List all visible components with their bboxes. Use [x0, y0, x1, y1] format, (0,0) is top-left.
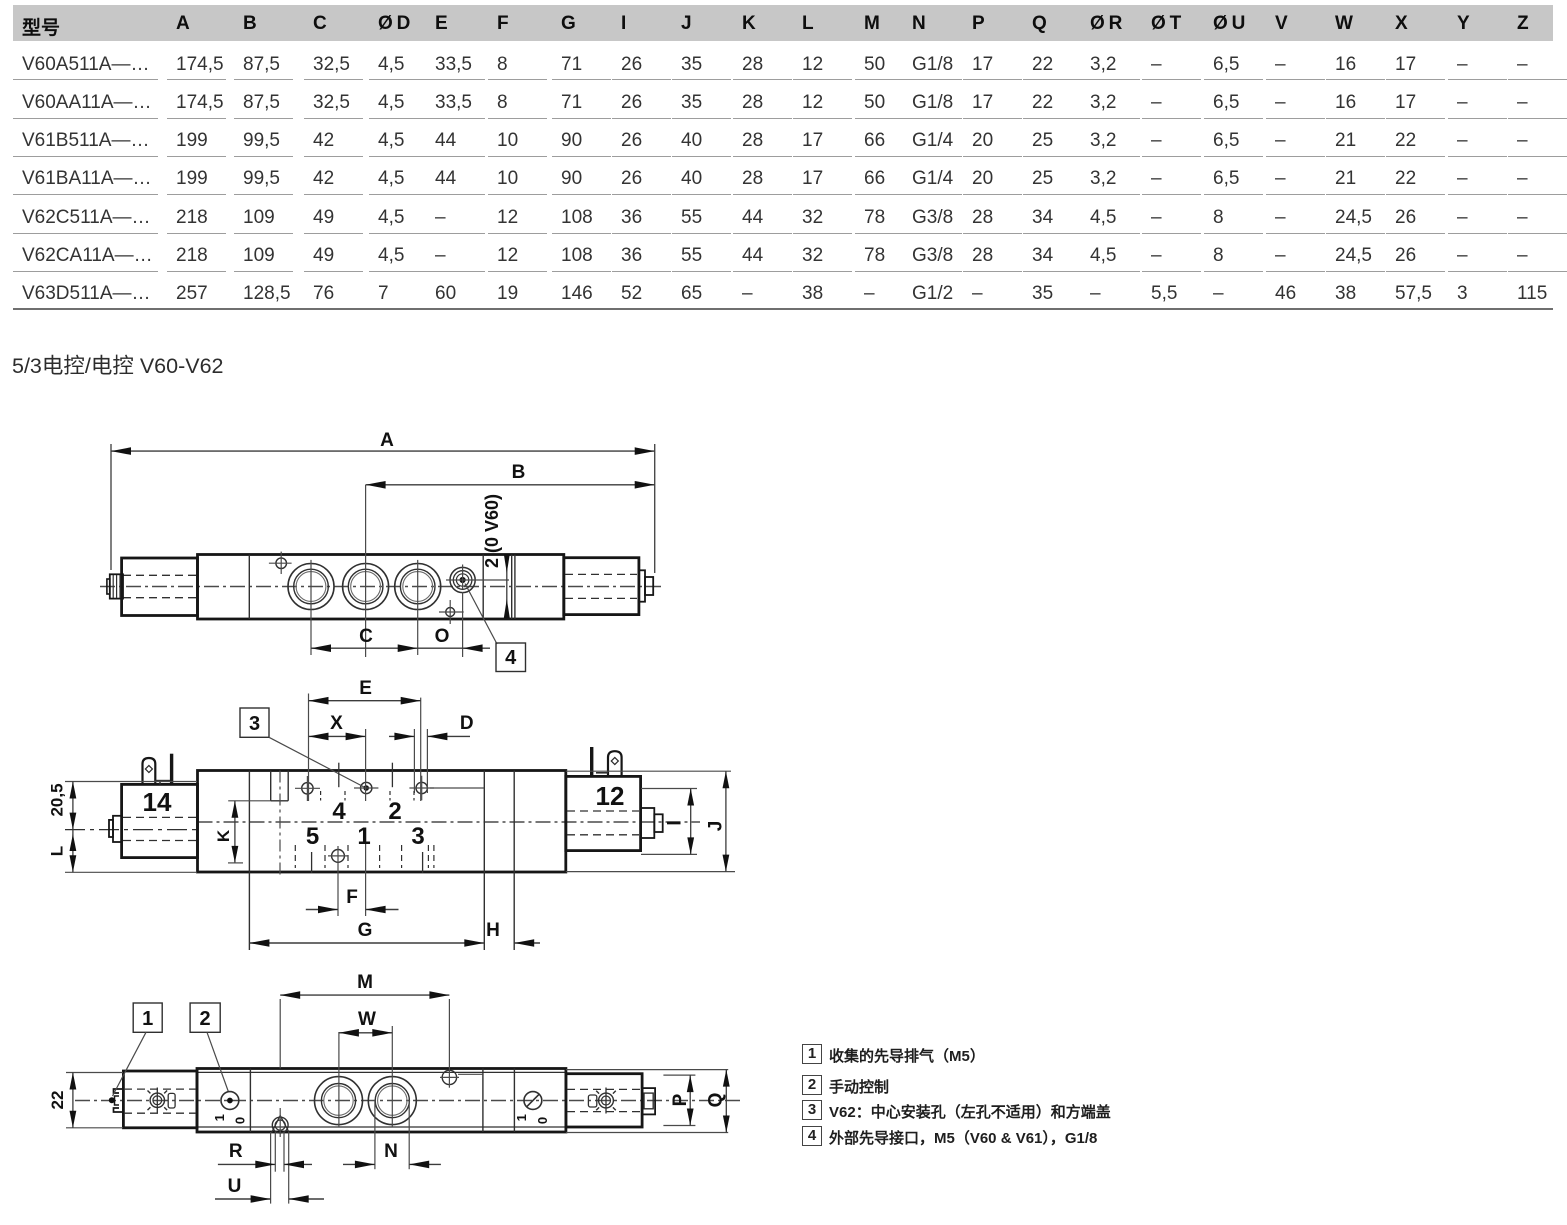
svg-text:1: 1	[514, 1114, 529, 1121]
svg-text:U: U	[228, 1176, 242, 1197]
svg-text:3: 3	[411, 823, 424, 850]
svg-text:12: 12	[596, 781, 625, 811]
svg-text:C: C	[359, 626, 373, 647]
svg-text:B: B	[512, 462, 526, 483]
svg-text:F: F	[346, 887, 358, 908]
svg-text:H: H	[486, 920, 500, 941]
svg-text:G: G	[358, 920, 373, 941]
svg-text:22: 22	[48, 1091, 67, 1110]
svg-text:0: 0	[233, 1117, 248, 1124]
svg-text:Q: Q	[706, 1093, 727, 1108]
svg-text:O: O	[435, 626, 450, 647]
svg-text:M: M	[357, 972, 373, 993]
svg-text:2 (0 V60): 2 (0 V60)	[482, 494, 502, 568]
svg-text:X: X	[330, 713, 343, 734]
svg-text:R: R	[229, 1141, 243, 1162]
svg-text:5: 5	[306, 823, 319, 850]
svg-text:D: D	[460, 713, 474, 734]
svg-text:14: 14	[143, 787, 172, 817]
svg-text:2: 2	[388, 798, 401, 825]
svg-text:W: W	[358, 1009, 376, 1030]
svg-text:L: L	[48, 846, 67, 856]
svg-text:0: 0	[535, 1117, 550, 1124]
svg-text:P: P	[670, 1093, 691, 1106]
svg-text:I: I	[665, 820, 686, 825]
svg-text:3: 3	[249, 713, 260, 735]
svg-text:1: 1	[142, 1008, 153, 1030]
svg-text:K: K	[214, 829, 233, 842]
svg-text:4: 4	[332, 798, 346, 825]
svg-text:E: E	[359, 678, 372, 699]
svg-text:2: 2	[200, 1008, 211, 1030]
svg-text:4: 4	[505, 647, 517, 669]
svg-text:N: N	[384, 1141, 398, 1162]
svg-text:J: J	[706, 821, 727, 832]
svg-text:20,5: 20,5	[48, 783, 67, 816]
svg-text:1: 1	[357, 823, 370, 850]
svg-text:1: 1	[212, 1114, 227, 1121]
svg-text:A: A	[380, 430, 394, 451]
